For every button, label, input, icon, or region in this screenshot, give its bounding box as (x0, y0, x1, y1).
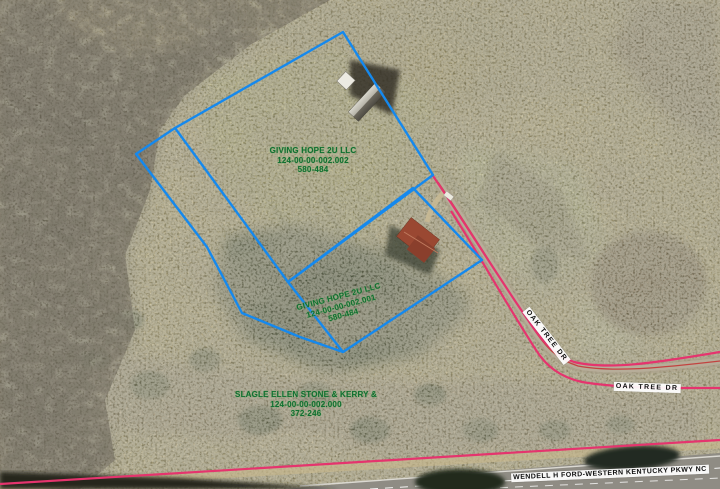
parcel-label-002-002: GIVING HOPE 2U LLC 124-00-00-002.002 580… (270, 146, 357, 175)
parcel-owner: SLAGLE ELLEN STONE & KERRY & (235, 390, 377, 400)
parcel-id: 124-00-00-002.002 (270, 155, 357, 165)
parcel-id: 124-00-00-002.000 (235, 399, 377, 409)
parcel-owner: GIVING HOPE 2U LLC (270, 146, 357, 156)
parcel-deed-ref: 372-246 (235, 409, 377, 419)
parcel-label-002-000: SLAGLE ELLEN STONE & KERRY & 124-00-00-0… (235, 390, 377, 419)
gis-aerial-parcel-map: GIVING HOPE 2U LLC 124-00-00-002.002 580… (0, 0, 720, 489)
parcel-deed-ref: 580-484 (270, 165, 357, 175)
